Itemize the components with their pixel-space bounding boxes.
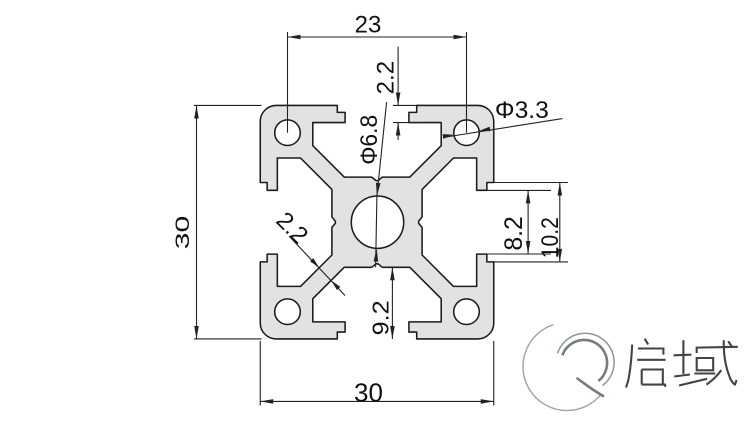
- svg-text:2.2: 2.2: [372, 61, 399, 95]
- svg-text:8.2: 8.2: [500, 216, 528, 251]
- svg-text:9.2: 9.2: [368, 300, 394, 335]
- svg-text:23: 23: [355, 12, 382, 39]
- svg-text:Φ6.8: Φ6.8: [356, 115, 383, 165]
- svg-text:30: 30: [173, 216, 194, 250]
- svg-text:30: 30: [354, 378, 383, 408]
- svg-text:Φ3.3: Φ3.3: [495, 97, 549, 124]
- svg-text:10.2: 10.2: [537, 217, 564, 258]
